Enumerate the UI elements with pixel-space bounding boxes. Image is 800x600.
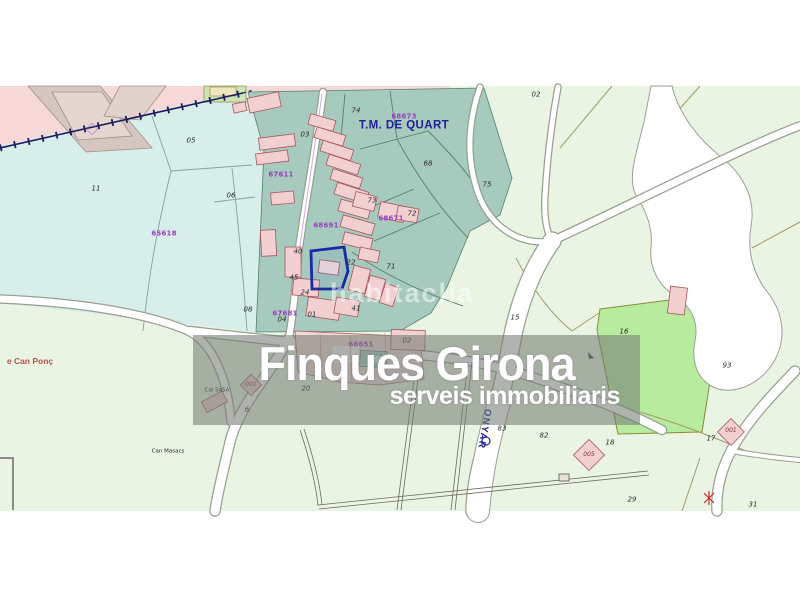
agency-watermark-band: Finques Girona serveis immobiliaris [193, 335, 640, 425]
well-marker [482, 437, 490, 445]
cadastral-map: 0511060803740268757372712240452441010402… [0, 0, 800, 600]
portal-watermark: habitaclia [330, 278, 475, 309]
agency-name: Finques Girona [193, 337, 640, 392]
